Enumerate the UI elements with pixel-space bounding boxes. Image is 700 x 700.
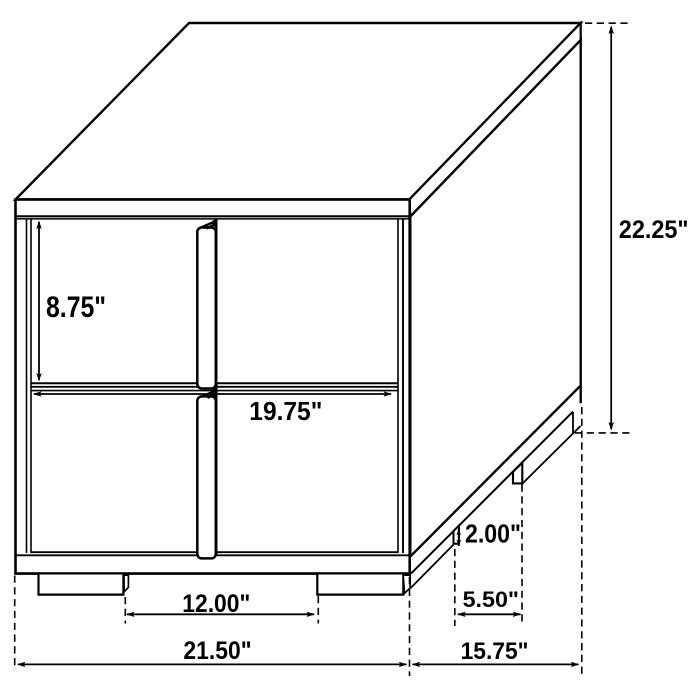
svg-text:19.75": 19.75"	[249, 397, 322, 426]
svg-text:22.25": 22.25"	[619, 216, 689, 244]
svg-text:2.00": 2.00"	[465, 520, 521, 548]
svg-text:5.50": 5.50"	[463, 587, 519, 613]
svg-text:12.00": 12.00"	[182, 590, 250, 618]
svg-text:8.75": 8.75"	[46, 290, 106, 324]
svg-text:21.50": 21.50"	[183, 637, 251, 665]
svg-text:15.75": 15.75"	[461, 638, 529, 665]
